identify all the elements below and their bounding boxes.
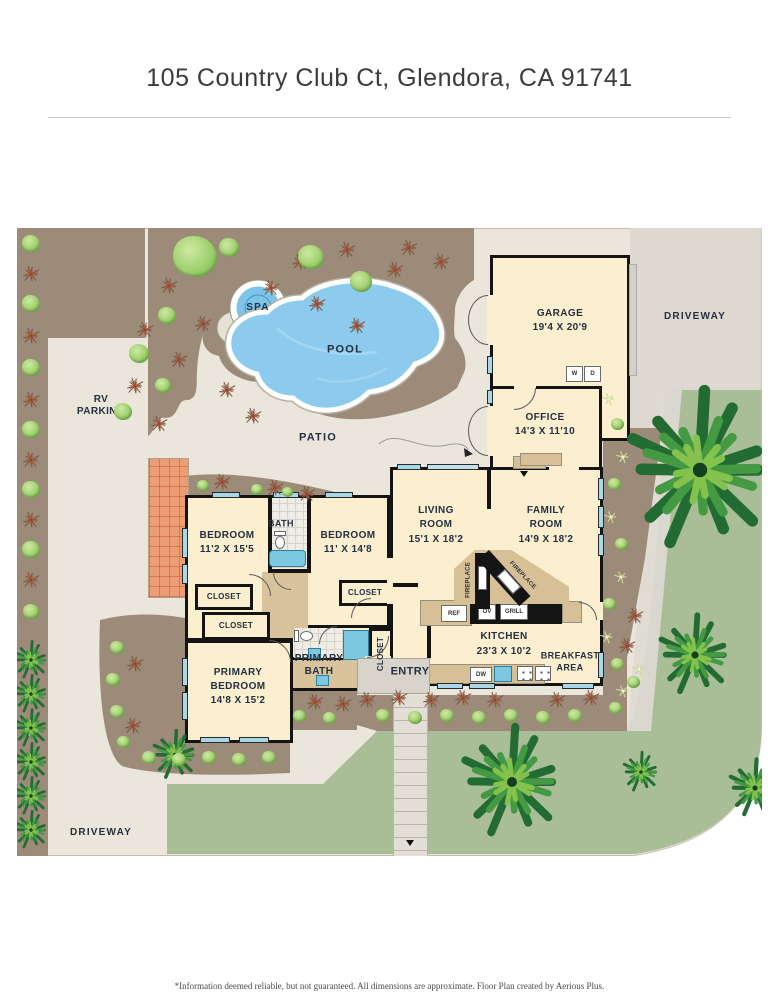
window [562,683,594,689]
pool-label: POOL [327,343,363,356]
grill-box: GRILL [500,604,528,620]
dryer-label: D [590,371,594,377]
patio-label: PATIO [299,431,337,444]
floor-plan-page: 105 Country Club Ct, Glendora, CA 91741 [0,0,779,1008]
window [598,506,604,528]
primary-bath-label-1: PRIMARY [295,653,344,665]
sliding-door [427,464,479,470]
family-door-arrow-icon [520,471,528,477]
washer-label: W [572,371,578,377]
wall-bath-right [307,495,311,572]
walkway-arrow-icon [406,840,414,846]
rv-parking-label-2: PARKING [77,406,125,418]
office-label: OFFICE [525,412,564,424]
garage-door [629,264,637,376]
closet-label: CLOSET [376,637,386,671]
family-room-label-1: FAMILY [527,505,565,517]
primary-bedroom-label-2: BEDROOM [210,681,265,693]
closet-label: CLOSET [207,592,241,602]
site-plan: REF OV GRILL DW W D [17,228,762,858]
window [397,464,421,470]
window [212,492,240,498]
primary-bedroom-label-1: PRIMARY [214,667,263,679]
spa-label: SPA [246,302,269,314]
title-divider [48,117,731,118]
closet-label: CLOSET [348,588,382,598]
window [200,737,230,743]
window [598,534,604,556]
wall-living-family [487,467,491,509]
driveway-bottom-label: DRIVEWAY [70,827,132,839]
disclaimer-text: *Information deemed reliable, but not gu… [0,981,779,991]
living-room-dims: 15'1 X 18'2 [409,534,464,546]
primary-toilet [300,631,313,641]
hall-opening [387,558,393,604]
family-room-label-2: ROOM [530,519,563,531]
dryer-box: D [584,366,601,382]
washer-box: W [566,366,583,382]
bedroom1-dims: 11'2 X 15'5 [200,544,254,556]
kitchen-label: KITCHEN [480,631,527,643]
primary-toilet-tank [294,630,299,642]
office-dims: 14'3 X 11'10 [515,426,575,438]
window [598,478,604,500]
window [182,564,188,584]
kitchen-dims: 23'3 X 10'2 [477,646,532,658]
bedroom2-dims: 11' X 14'8 [324,544,372,556]
breakfast-label-1: BREAKFAST [541,651,600,662]
window [182,658,188,686]
entry-walkway [393,695,428,856]
window [487,390,493,404]
family-room-dims: 14'9 X 18'2 [519,534,574,546]
window [182,692,188,720]
fridge-box: REF [441,605,467,622]
fridge-label: REF [448,611,460,617]
primary-bath-label-2: BATH [305,666,334,678]
window [325,492,353,498]
window [437,683,463,689]
family-step [520,453,562,466]
window [469,683,495,689]
stove-burners-a [517,666,533,681]
breakfast-label-2: AREA [556,663,583,674]
wall-living-stub [390,583,418,587]
bedroom1-label: BEDROOM [199,530,254,542]
bathtub [269,550,306,567]
living-room-label-1: LIVING [418,505,454,517]
window [273,492,299,498]
bath-label: BATH [268,519,294,530]
fireplace-label: FIREPLACE [465,562,472,598]
page-title: 105 Country Club Ct, Glendora, CA 91741 [0,64,779,93]
primary-bedroom-dims: 14'8 X 15'2 [211,695,266,707]
window [182,528,188,558]
kitchen-sink [494,666,512,682]
living-room-label-2: ROOM [420,519,453,531]
oven-label: OV [483,609,492,615]
driveway-right-label: DRIVEWAY [664,311,726,323]
rv-parking-label-1: RV [94,394,109,406]
bedroom2-label: BEDROOM [320,530,375,542]
grill-label: GRILL [505,609,523,615]
office-family-opening [549,467,579,472]
garage-label: GARAGE [537,308,583,320]
closet-label: CLOSET [219,621,253,631]
hall-bath-toilet [275,536,285,549]
stove-burners-b [535,666,551,681]
dishwasher-box: DW [470,667,492,682]
window [487,356,493,374]
dishwasher-label: DW [476,672,486,678]
garage-dims: 19'4 X 20'9 [533,322,588,334]
entry-label: ENTRY [391,665,430,678]
window [239,737,269,743]
